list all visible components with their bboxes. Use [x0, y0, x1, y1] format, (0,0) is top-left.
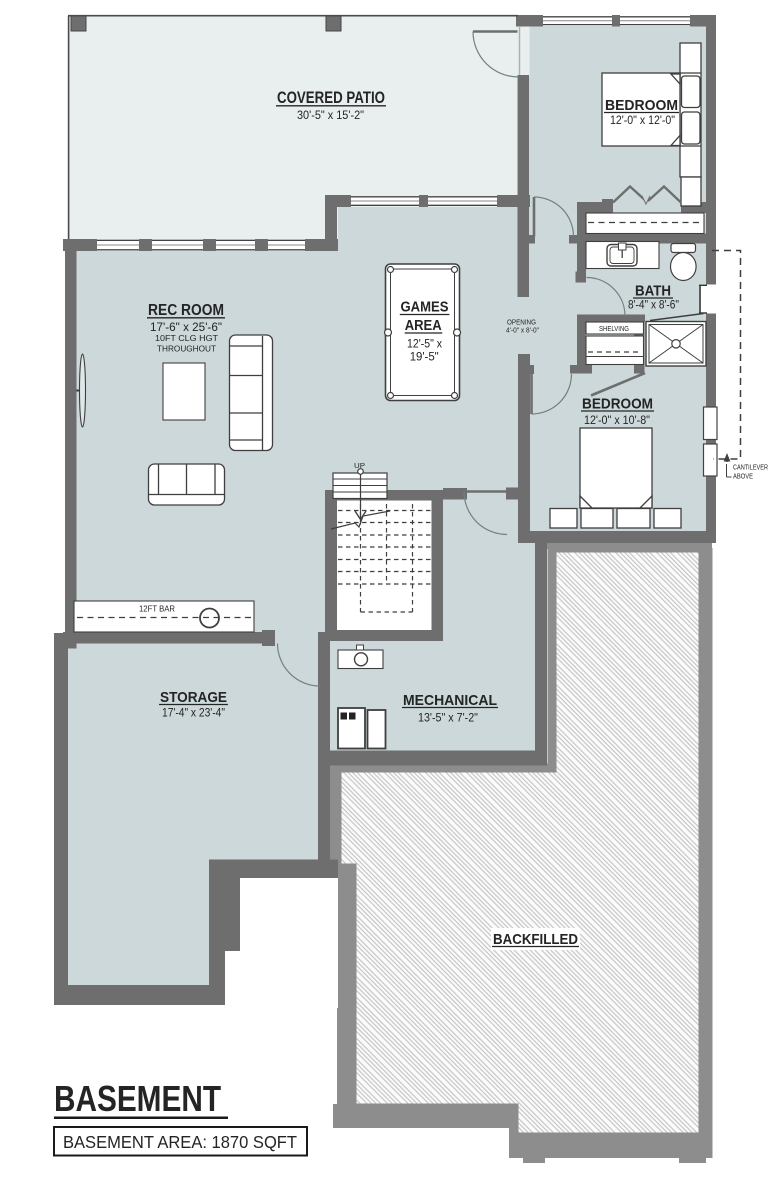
svg-text:OPENING: OPENING	[507, 320, 536, 327]
svg-text:COVERED PATIO: COVERED PATIO	[277, 88, 385, 107]
svg-text:13'-5" x 7'-2": 13'-5" x 7'-2"	[418, 713, 478, 725]
svg-text:SHELVING: SHELVING	[599, 326, 629, 333]
svg-text:17'-4" x 23'-4": 17'-4" x 23'-4"	[162, 708, 225, 720]
svg-text:MECHANICAL: MECHANICAL	[403, 692, 497, 709]
svg-text:BASEMENT AREA: 1870 SQFT: BASEMENT AREA: 1870 SQFT	[63, 1132, 297, 1152]
svg-text:THROUGHOUT: THROUGHOUT	[157, 344, 216, 354]
svg-text:CANTILEVER: CANTILEVER	[733, 463, 768, 472]
svg-text:30'-5" x 15'-2": 30'-5" x 15'-2"	[297, 108, 364, 122]
svg-text:REC ROOM: REC ROOM	[148, 302, 224, 319]
svg-text:AREA: AREA	[405, 318, 442, 334]
svg-text:BEDROOM: BEDROOM	[582, 396, 653, 413]
svg-text:BACKFILLED: BACKFILLED	[493, 931, 578, 948]
svg-text:19'-5": 19'-5"	[410, 352, 439, 364]
svg-text:10FT CLG HGT: 10FT CLG HGT	[155, 333, 218, 343]
svg-text:8'-4" x 8'-6": 8'-4" x 8'-6"	[628, 300, 679, 312]
svg-text:STORAGE: STORAGE	[160, 689, 227, 706]
svg-text:12'-5" x: 12'-5" x	[407, 339, 442, 351]
svg-text:GAMES: GAMES	[401, 300, 449, 316]
svg-text:12'-0" x 10'-8": 12'-0" x 10'-8"	[584, 415, 650, 427]
svg-text:BEDROOM: BEDROOM	[605, 97, 678, 114]
svg-text:ABOVE: ABOVE	[733, 472, 753, 481]
svg-text:12'-0" x 12'-0": 12'-0" x 12'-0"	[610, 115, 675, 127]
svg-text:17'-6" x 25'-6": 17'-6" x 25'-6"	[150, 320, 222, 334]
svg-text:4'-0" x 8'-0": 4'-0" x 8'-0"	[506, 328, 539, 335]
svg-text:UP: UP	[354, 461, 365, 470]
svg-text:12FT BAR: 12FT BAR	[139, 604, 175, 614]
svg-text:BASEMENT: BASEMENT	[54, 1078, 221, 1119]
svg-text:BATH: BATH	[635, 283, 671, 300]
